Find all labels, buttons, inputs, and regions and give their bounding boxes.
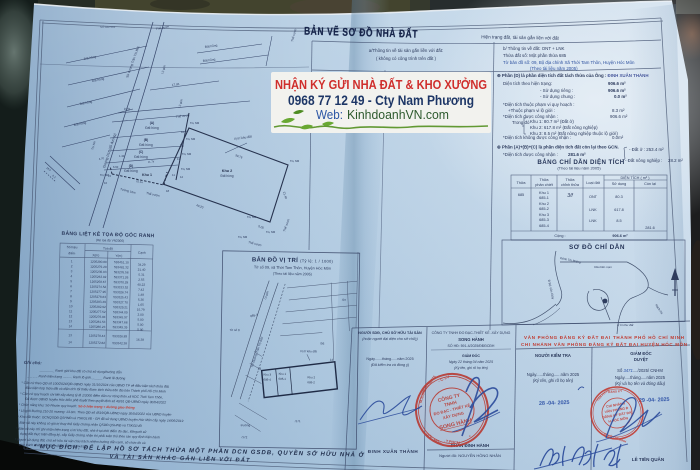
svg-text:7.42: 7.42 bbox=[138, 288, 144, 292]
svg-text:Ngày......tháng......năm 2025: Ngày......tháng......năm 2025 bbox=[527, 372, 580, 377]
svg-text:Trụ NM: Trụ NM bbox=[181, 167, 191, 171]
svg-text:Khu 3: Khu 3 bbox=[539, 213, 549, 217]
svg-text:CHI NHÁNH VĂN PHÒNG ĐĂNG KÝ ĐẤ: CHI NHÁNH VĂN PHÒNG ĐĂNG KÝ ĐẤT ĐAI HUYỆ… bbox=[521, 340, 687, 347]
svg-text:34.29: 34.29 bbox=[138, 263, 146, 267]
svg-text:Trụ NM: Trụ NM bbox=[266, 230, 276, 234]
svg-text:1.40: 1.40 bbox=[119, 154, 125, 158]
svg-text:11: 11 bbox=[69, 309, 73, 313]
svg-text:(hoặc người đại diện cho sở ch: (hoặc người đại diện cho sở chữ)) bbox=[362, 337, 418, 341]
svg-text:Tọa độ: Tọa độ bbox=[103, 246, 113, 250]
svg-text:5.00: 5.00 bbox=[137, 318, 143, 322]
svg-text:21.40: 21.40 bbox=[138, 268, 146, 272]
svg-text:Thửa đất số: Một phần thửa 68: Thửa đất số: Một phần thửa 685 bbox=[503, 53, 567, 58]
svg-text:1205281.53: 1205281.53 bbox=[89, 320, 106, 324]
svg-text:Cạnh: Cạnh bbox=[138, 251, 146, 255]
svg-text:Loại đất: Loại đất bbox=[586, 181, 600, 185]
svg-text:593370.28: 593370.28 bbox=[114, 280, 129, 284]
svg-text:6.60: 6.60 bbox=[113, 165, 119, 169]
svg-text:28 -04- 2025: 28 -04- 2025 bbox=[539, 400, 570, 407]
svg-text:1205279.20: 1205279.20 bbox=[90, 265, 107, 269]
svg-text:(A): (A) bbox=[150, 121, 155, 125]
svg-text:Đất hồng: Đất hồng bbox=[221, 174, 234, 178]
svg-text:906.6 m²: 906.6 m² bbox=[608, 88, 626, 93]
svg-text:0968 77 12 49 - Cty Nam Phương: 0968 77 12 49 - Cty Nam Phương bbox=[288, 93, 474, 108]
svg-text:1205290.80: 1205290.80 bbox=[90, 260, 107, 264]
svg-text:- Sử dụng riêng :: - Sử dụng riêng : bbox=[540, 88, 573, 93]
svg-text:Cầu bến nọm: Cầu bến nọm bbox=[594, 265, 613, 269]
svg-text:KinhdoanhVN.com: KinhdoanhVN.com bbox=[347, 107, 449, 122]
svg-text:1205278.44: 1205278.44 bbox=[89, 334, 106, 338]
svg-text:Trong đó: Trong đó bbox=[512, 120, 530, 125]
svg-text:- Đất nông nghiệp :: - Đất nông nghiệp : bbox=[625, 158, 662, 163]
svg-text:593344.09: 593344.09 bbox=[113, 310, 128, 314]
svg-text:Khu 2: Khu 2 bbox=[307, 375, 315, 379]
svg-text:Trụ NM: Trụ NM bbox=[182, 152, 192, 156]
svg-text:0.0 m²: 0.0 m² bbox=[614, 94, 627, 99]
svg-text:Trụ NM: Trụ NM bbox=[238, 235, 248, 239]
svg-text:Còn lại: Còn lại bbox=[644, 182, 656, 186]
svg-text:*Diện tích thuộc phạm vi quy h: *Diện tích thuộc phạm vi quy hoạch : bbox=[503, 102, 575, 107]
svg-text:8.5: 8.5 bbox=[616, 219, 621, 223]
svg-text:Khu 2: Khu 2 bbox=[539, 202, 549, 206]
svg-text:Thửa: Thửa bbox=[565, 178, 575, 182]
svg-text:16: 16 bbox=[104, 181, 107, 185]
svg-text:NHẬN KÝ GỬI NHÀ ĐẤT & KHO XƯỞN: NHẬN KÝ GỬI NHÀ ĐẤT & KHO XƯỞNG bbox=[275, 77, 487, 92]
svg-text:chỉnh thửa: chỉnh thửa bbox=[561, 183, 580, 187]
svg-text:Sử dụng: Sử dụng bbox=[612, 182, 627, 186]
svg-text:1205282.92: 1205282.92 bbox=[89, 305, 106, 309]
svg-text:1.48: 1.48 bbox=[138, 293, 144, 297]
svg-text:Số 3471..../2025/ CNHM: Số 3471..../2025/ CNHM bbox=[617, 368, 663, 373]
svg-text:685-4: 685-4 bbox=[263, 378, 271, 382]
svg-text:/172: /172 bbox=[241, 435, 247, 439]
svg-text:Ngày.....tháng.....năm 2025: Ngày.....tháng.....năm 2025 bbox=[615, 375, 666, 380]
svg-text:685-2: 685-2 bbox=[307, 380, 315, 384]
svg-text:Đất hồng: Đất hồng bbox=[134, 155, 148, 159]
svg-text:Khu 2: 617.8 m² (Đất nông ngh: Khu 2: 617.8 m² (Đất nông nghiệp) bbox=[530, 125, 598, 130]
svg-text:Khu 1: Khu 1 bbox=[142, 173, 152, 177]
svg-text:(Ký và họ tên và đóng dấu): (Ký và họ tên và đóng dấu) bbox=[615, 381, 666, 386]
svg-text:281.6 m²: 281.6 m² bbox=[568, 152, 586, 157]
svg-text:CÔNG TY TNHH ĐO ĐẠC-THIẾT KẾ: CÔNG TY TNHH ĐO ĐẠC-THIẾT KẾ -XÂY DỰNG bbox=[432, 330, 511, 335]
svg-text:18: 18 bbox=[166, 189, 170, 193]
svg-text:28.2 m²: 28.2 m² bbox=[668, 158, 683, 163]
svg-text:14: 14 bbox=[69, 324, 73, 328]
svg-text:593329.21: 593329.21 bbox=[113, 305, 128, 309]
svg-text:685-2: 685-2 bbox=[539, 207, 549, 211]
svg-text:Trụ NM: Trụ NM bbox=[247, 215, 257, 219]
svg-text:593325.43: 593325.43 bbox=[113, 295, 128, 299]
svg-text:Khu 3: Khu 3 bbox=[264, 373, 272, 377]
svg-text:906.6 m²: 906.6 m² bbox=[608, 81, 626, 86]
svg-text:(Theo tài liệu năm 2005): (Theo tài liệu năm 2005) bbox=[557, 166, 601, 171]
svg-text:Đất hồng: Đất hồng bbox=[124, 169, 138, 173]
svg-text:GIÁM ĐỐC: GIÁM ĐỐC bbox=[630, 351, 651, 356]
svg-text:2.00: 2.00 bbox=[138, 313, 144, 317]
svg-text:593451.10: 593451.10 bbox=[114, 260, 129, 264]
svg-text:Thửa: Thửa bbox=[539, 178, 549, 182]
svg-text:SONG HÀNH: SONG HÀNH bbox=[458, 337, 484, 342]
svg-text:5.00: 5.00 bbox=[137, 323, 143, 327]
svg-text:593326.74: 593326.74 bbox=[113, 290, 128, 294]
svg-text:1205286.23: 1205286.23 bbox=[89, 325, 106, 329]
svg-text:5.36: 5.36 bbox=[138, 298, 144, 302]
svg-text:Thửa: Thửa bbox=[516, 181, 526, 185]
svg-text:Số hiệu: Số hiệu bbox=[67, 245, 78, 249]
svg-text:vị trí khu đất: vị trí khu đất bbox=[617, 323, 634, 327]
svg-text:9 hạ: 9 hạ bbox=[124, 106, 131, 111]
svg-text:1205276.84: 1205276.84 bbox=[89, 315, 106, 319]
svg-text:/171: /171 bbox=[295, 419, 301, 423]
svg-text:VĂN PHÒNG ĐĂNG KÝ ĐẤT ĐAI THÀN: VĂN PHÒNG ĐĂNG KÝ ĐẤT ĐAI THÀNH PHỐ HỒ C… bbox=[524, 333, 684, 340]
svg-text:12: 12 bbox=[180, 175, 184, 179]
svg-text:1205274.52: 1205274.52 bbox=[90, 285, 107, 289]
svg-text:14: 14 bbox=[68, 340, 72, 344]
svg-text:1205258.67: 1205258.67 bbox=[90, 280, 107, 284]
svg-text:(D): (D) bbox=[129, 164, 134, 168]
svg-text:8.3 m²: 8.3 m² bbox=[612, 108, 625, 113]
svg-text:GIÁM ĐỐC: GIÁM ĐỐC bbox=[462, 353, 480, 358]
svg-text:Đất hồng: Đất hồng bbox=[139, 143, 153, 147]
svg-text:40.22: 40.22 bbox=[137, 283, 145, 287]
svg-text:29 -04- 2025: 29 -04- 2025 bbox=[639, 397, 670, 404]
svg-text:15.79: 15.79 bbox=[137, 308, 145, 312]
svg-text:80.3: 80.3 bbox=[615, 195, 622, 199]
svg-text:Trụ NM: Trụ NM bbox=[190, 121, 200, 125]
svg-text:Y(m): Y(m) bbox=[115, 254, 122, 258]
svg-text:Ghi chú:: Ghi chú: bbox=[24, 360, 42, 365]
svg-text:LNK: LNK bbox=[589, 219, 597, 223]
svg-text:ĐINH XUÂN THÀNH: ĐINH XUÂN THÀNH bbox=[368, 448, 419, 454]
svg-text:Khu 1: Khu 1 bbox=[279, 372, 287, 376]
svg-text:11: 11 bbox=[172, 173, 175, 177]
svg-text:/06: /06 bbox=[320, 342, 325, 346]
svg-text:1.65: 1.65 bbox=[138, 303, 144, 307]
svg-text:điểm: điểm bbox=[68, 251, 75, 255]
svg-text:DUYỆT: DUYỆT bbox=[634, 357, 649, 362]
svg-text:DIỆN TÍCH ( m² ): DIỆN TÍCH ( m² ) bbox=[620, 175, 650, 180]
svg-text:Đường: Đường bbox=[241, 423, 251, 427]
svg-text:617.8: 617.8 bbox=[614, 208, 624, 212]
svg-text:Tờ số 8: Tờ số 8 bbox=[229, 328, 240, 332]
svg-text:593349.39: 593349.39 bbox=[113, 325, 128, 329]
svg-text:*Diện tích không được công nhậ: *Diện tích không được công nhận : bbox=[503, 135, 571, 140]
svg-text:(Theo tài liệu năm 2005): (Theo tài liệu năm 2005) bbox=[273, 272, 312, 277]
svg-text:281.6: 281.6 bbox=[645, 226, 655, 230]
svg-text:Khu 2: Khu 2 bbox=[222, 169, 233, 173]
svg-text:12: 12 bbox=[69, 314, 73, 318]
svg-text:LÊ TIẾN QUÂN: LÊ TIẾN QUÂN bbox=[632, 455, 665, 462]
svg-text:5.00: 5.00 bbox=[137, 328, 143, 332]
svg-text:1205277.52: 1205277.52 bbox=[89, 310, 106, 314]
svg-text:LNK: LNK bbox=[589, 208, 597, 212]
svg-text:593327.70: 593327.70 bbox=[113, 300, 128, 304]
svg-text:1205239.03: 1205239.03 bbox=[90, 270, 107, 274]
svg-text:*Diện tích được công nhận :: *Diện tích được công nhận : bbox=[503, 152, 558, 157]
svg-text:5.31: 5.31 bbox=[138, 273, 144, 277]
svg-text:/07: /07 bbox=[342, 298, 347, 302]
svg-text:1205263.02: 1205263.02 bbox=[90, 275, 107, 279]
svg-text:593371.26: 593371.26 bbox=[114, 275, 129, 279]
svg-text:(C): (C) bbox=[139, 150, 144, 154]
svg-text:b/ Thông tin về đất: ONT + LNK: b/ Thông tin về đất: ONT + LNK bbox=[503, 46, 565, 51]
svg-text:685-1: 685-1 bbox=[539, 196, 549, 200]
svg-text:Ngày 22 tháng 04 năm 2025: Ngày 22 tháng 04 năm 2025 bbox=[449, 360, 493, 364]
svg-text:3/f: 3/f bbox=[567, 193, 573, 199]
svg-text:1205277.95: 1205277.95 bbox=[90, 290, 107, 294]
svg-text:593481.32: 593481.32 bbox=[114, 265, 129, 269]
svg-text:+Thuộc phạm vi lộ giới :: +Thuộc phạm vi lộ giới : bbox=[508, 108, 555, 113]
svg-text:phân chiết: phân chiết bbox=[535, 183, 553, 187]
svg-text:Trụ NM: Trụ NM bbox=[186, 137, 196, 141]
svg-text:⊕ Phần (A)+(B)+(C) là phần diệ: ⊕ Phần (A)+(B)+(C) là phần diện tích đất… bbox=[497, 145, 619, 150]
svg-text:Trụ NM: Trụ NM bbox=[290, 159, 300, 163]
svg-text:2.55: 2.55 bbox=[138, 278, 144, 282]
svg-text:- Sử dụng chung :: - Sử dụng chung : bbox=[540, 94, 575, 99]
svg-text:906.6 m²: 906.6 m² bbox=[612, 234, 628, 238]
svg-text:14: 14 bbox=[330, 358, 334, 362]
svg-text:ONT: ONT bbox=[589, 195, 598, 199]
svg-text:- Đất ở : 253.4 m²: - Đất ở : 253.4 m² bbox=[629, 147, 664, 152]
svg-text:( không có công trình trên đất: ( không có công trình trên đất ) bbox=[376, 56, 437, 61]
svg-text:(Ký tên, ghi rõ họ tên): (Ký tên, ghi rõ họ tên) bbox=[533, 378, 574, 383]
svg-text:13: 13 bbox=[69, 319, 73, 323]
svg-text:SỐ HĐ: 591-4/2025/ĐĐĐCĐH: SỐ HĐ: 591-4/2025/ĐĐĐCĐH bbox=[448, 343, 495, 348]
svg-text:593347.68: 593347.68 bbox=[113, 320, 128, 324]
svg-text:(B): (B) bbox=[144, 138, 149, 142]
svg-text:Web:: Web: bbox=[316, 107, 343, 122]
svg-text:Khu 1: 80.7 m² (Đất ở): Khu 1: 80.7 m² (Đất ở) bbox=[530, 119, 574, 124]
svg-text:X(m): X(m) bbox=[92, 253, 99, 257]
svg-text:593333.52: 593333.52 bbox=[113, 285, 128, 289]
svg-text:Khu 1: Khu 1 bbox=[539, 191, 549, 195]
svg-text:10: 10 bbox=[181, 130, 185, 134]
svg-text:13: 13 bbox=[177, 157, 181, 161]
svg-text:13: 13 bbox=[68, 333, 72, 337]
svg-text:a/Thông tin về tài sản gắn liề: a/Thông tin về tài sản gắn liền với đất: bbox=[369, 48, 443, 53]
svg-text:10: 10 bbox=[69, 304, 73, 308]
svg-text:(Đã kiểm tra và đồng ý): (Đã kiểm tra và đồng ý) bbox=[371, 363, 410, 367]
svg-text:685: 685 bbox=[518, 193, 524, 197]
svg-text:Vị trí khu đất: Vị trí khu đất bbox=[300, 349, 317, 353]
svg-text:Trụ NM: Trụ NM bbox=[100, 173, 110, 177]
svg-text:Diện tích theo hiện trạng:: Diện tích theo hiện trạng: bbox=[503, 81, 552, 86]
svg-text:(Ký tên, ghi rõ họ tên): (Ký tên, ghi rõ họ tên) bbox=[454, 366, 488, 370]
svg-text:685-3: 685-3 bbox=[539, 218, 549, 222]
svg-text:685-1: 685-1 bbox=[278, 377, 286, 381]
svg-text:NGƯỜI SDĐ, CHỦ SỞ HỮU TÀI SẢN: NGƯỜI SDĐ, CHỦ SỞ HỮU TÀI SẢN bbox=[358, 330, 422, 335]
svg-text:16.38: 16.38 bbox=[136, 338, 144, 342]
svg-text:0.0m²: 0.0m² bbox=[612, 135, 624, 140]
svg-text:593326.89: 593326.89 bbox=[112, 334, 127, 338]
svg-text:593276.58: 593276.58 bbox=[114, 270, 129, 274]
svg-text:1205278.63: 1205278.63 bbox=[90, 295, 107, 299]
svg-text:593345.97: 593345.97 bbox=[113, 315, 128, 319]
svg-text:13: 13 bbox=[258, 366, 262, 370]
svg-text:906.6 m²: 906.6 m² bbox=[610, 114, 628, 119]
svg-text:1205272.82: 1205272.82 bbox=[89, 341, 106, 345]
svg-text:SỐ HĐ 591: SỐ HĐ 591 bbox=[100, 24, 116, 29]
svg-text:685-4: 685-4 bbox=[539, 224, 549, 228]
svg-text:Người đủ: NGUYỄN HỒNG NHÂN: Người đủ: NGUYỄN HỒNG NHÂN bbox=[439, 453, 501, 458]
svg-text:(Theo tài liệu năm 2005): (Theo tài liệu năm 2005) bbox=[530, 66, 578, 71]
svg-text:NGƯỜI KIỂM TRA: NGƯỜI KIỂM TRA bbox=[535, 353, 571, 358]
svg-text:Cộng :: Cộng : bbox=[554, 234, 565, 238]
svg-text:⊕ Phần (D) là phần diện tích đ: ⊕ Phần (D) là phần diện tích đất tách th… bbox=[497, 73, 649, 78]
svg-text:593342.38: 593342.38 bbox=[112, 341, 127, 345]
svg-text:Đất hồng: Đất hồng bbox=[145, 126, 159, 130]
svg-text:1205283.49: 1205283.49 bbox=[89, 300, 106, 304]
svg-text:Tờ bản đồ số: 09, Bộ địa chín: Tờ bản đồ số: 09, Bộ địa chính Xã Thới T… bbox=[503, 60, 635, 65]
svg-text:(Hệ tọa độ VN2000): (Hệ tọa độ VN2000) bbox=[96, 238, 124, 243]
svg-text:Ngày.......tháng......năm 2025: Ngày.......tháng......năm 2025 bbox=[366, 357, 413, 361]
